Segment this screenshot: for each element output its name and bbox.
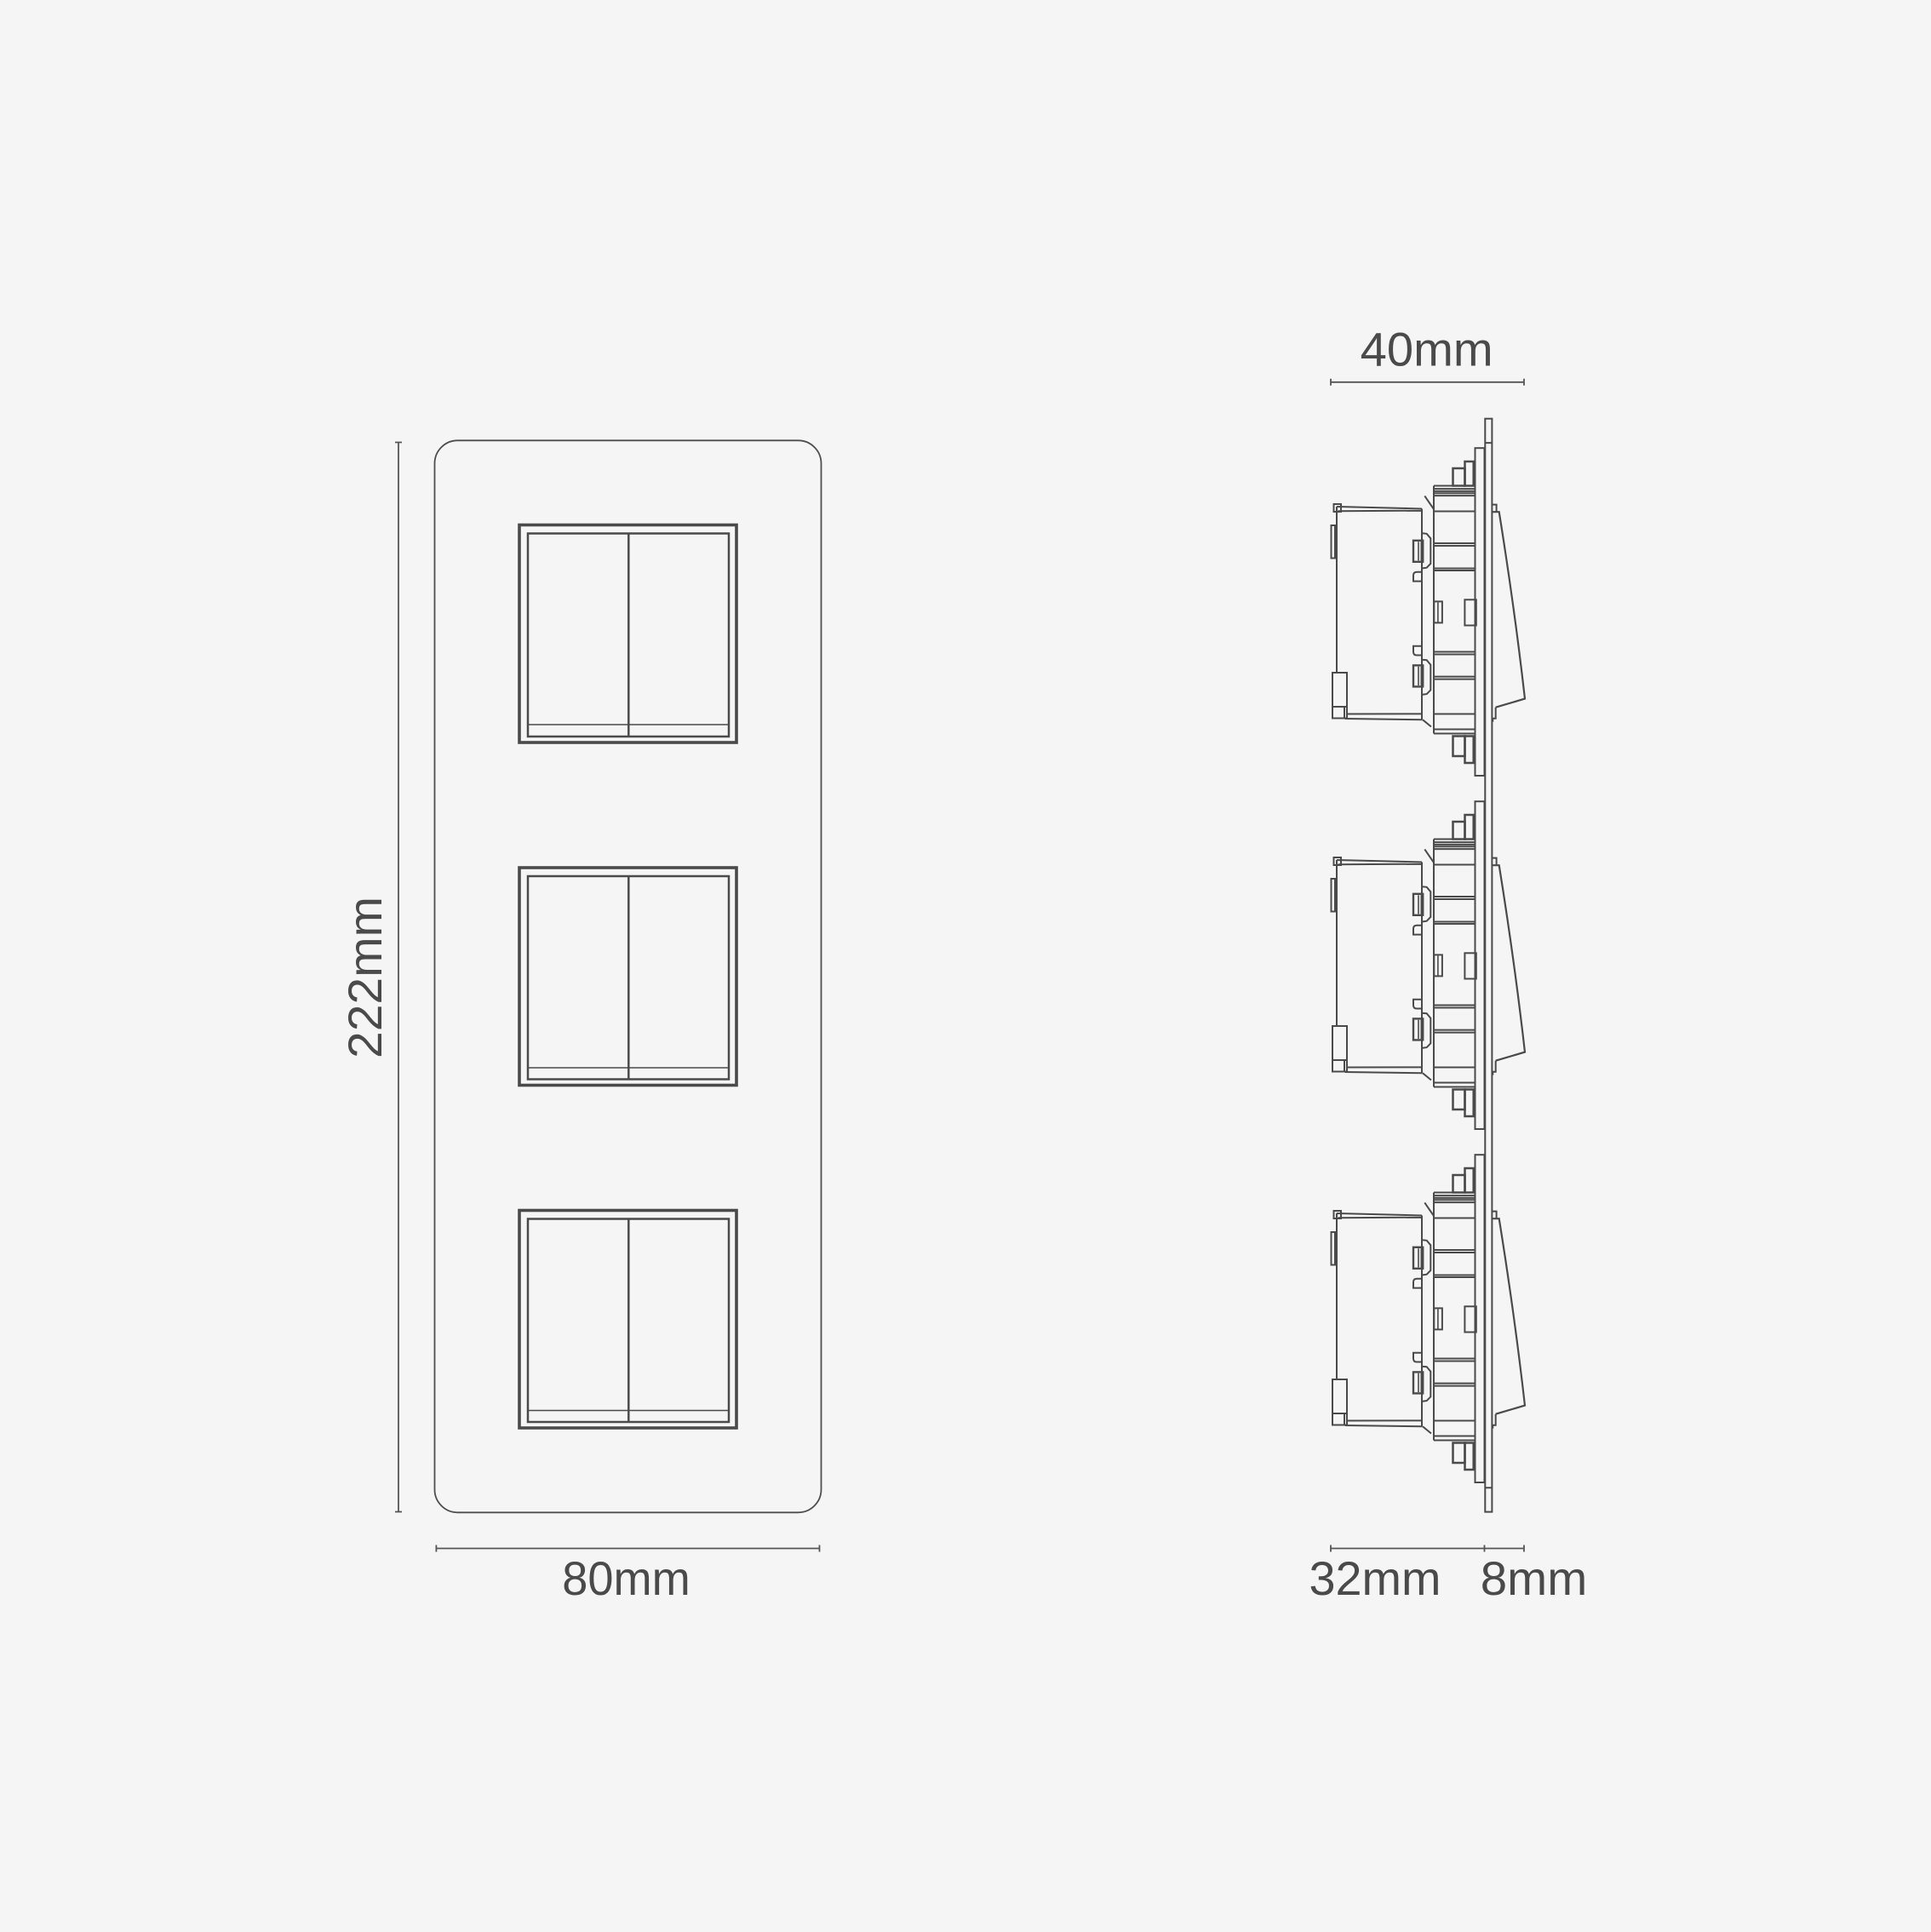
svg-text:8mm: 8mm — [1481, 1551, 1588, 1605]
svg-text:222mm: 222mm — [338, 897, 392, 1058]
svg-text:80mm: 80mm — [562, 1551, 690, 1605]
svg-text:40mm: 40mm — [1361, 323, 1493, 376]
svg-text:32mm: 32mm — [1309, 1551, 1441, 1605]
